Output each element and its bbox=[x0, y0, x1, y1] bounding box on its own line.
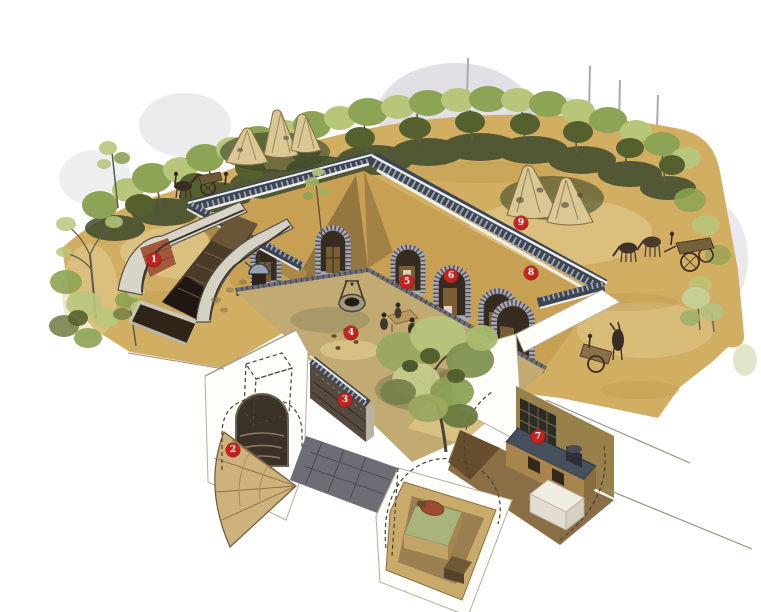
callout-marker-3: 3 bbox=[338, 393, 352, 407]
callout-marker-5: 5 bbox=[400, 275, 414, 289]
callout-marker-6: 6 bbox=[444, 269, 458, 283]
marker-layer: 123456789 bbox=[0, 0, 761, 612]
callout-marker-2: 2 bbox=[226, 443, 240, 457]
callout-marker-4: 4 bbox=[344, 326, 358, 340]
callout-marker-7: 7 bbox=[531, 430, 545, 444]
callout-marker-8: 8 bbox=[524, 266, 538, 280]
callout-marker-1: 1 bbox=[147, 253, 161, 267]
illustration-canvas: 123456789 bbox=[0, 0, 761, 612]
callout-marker-9: 9 bbox=[514, 216, 528, 230]
